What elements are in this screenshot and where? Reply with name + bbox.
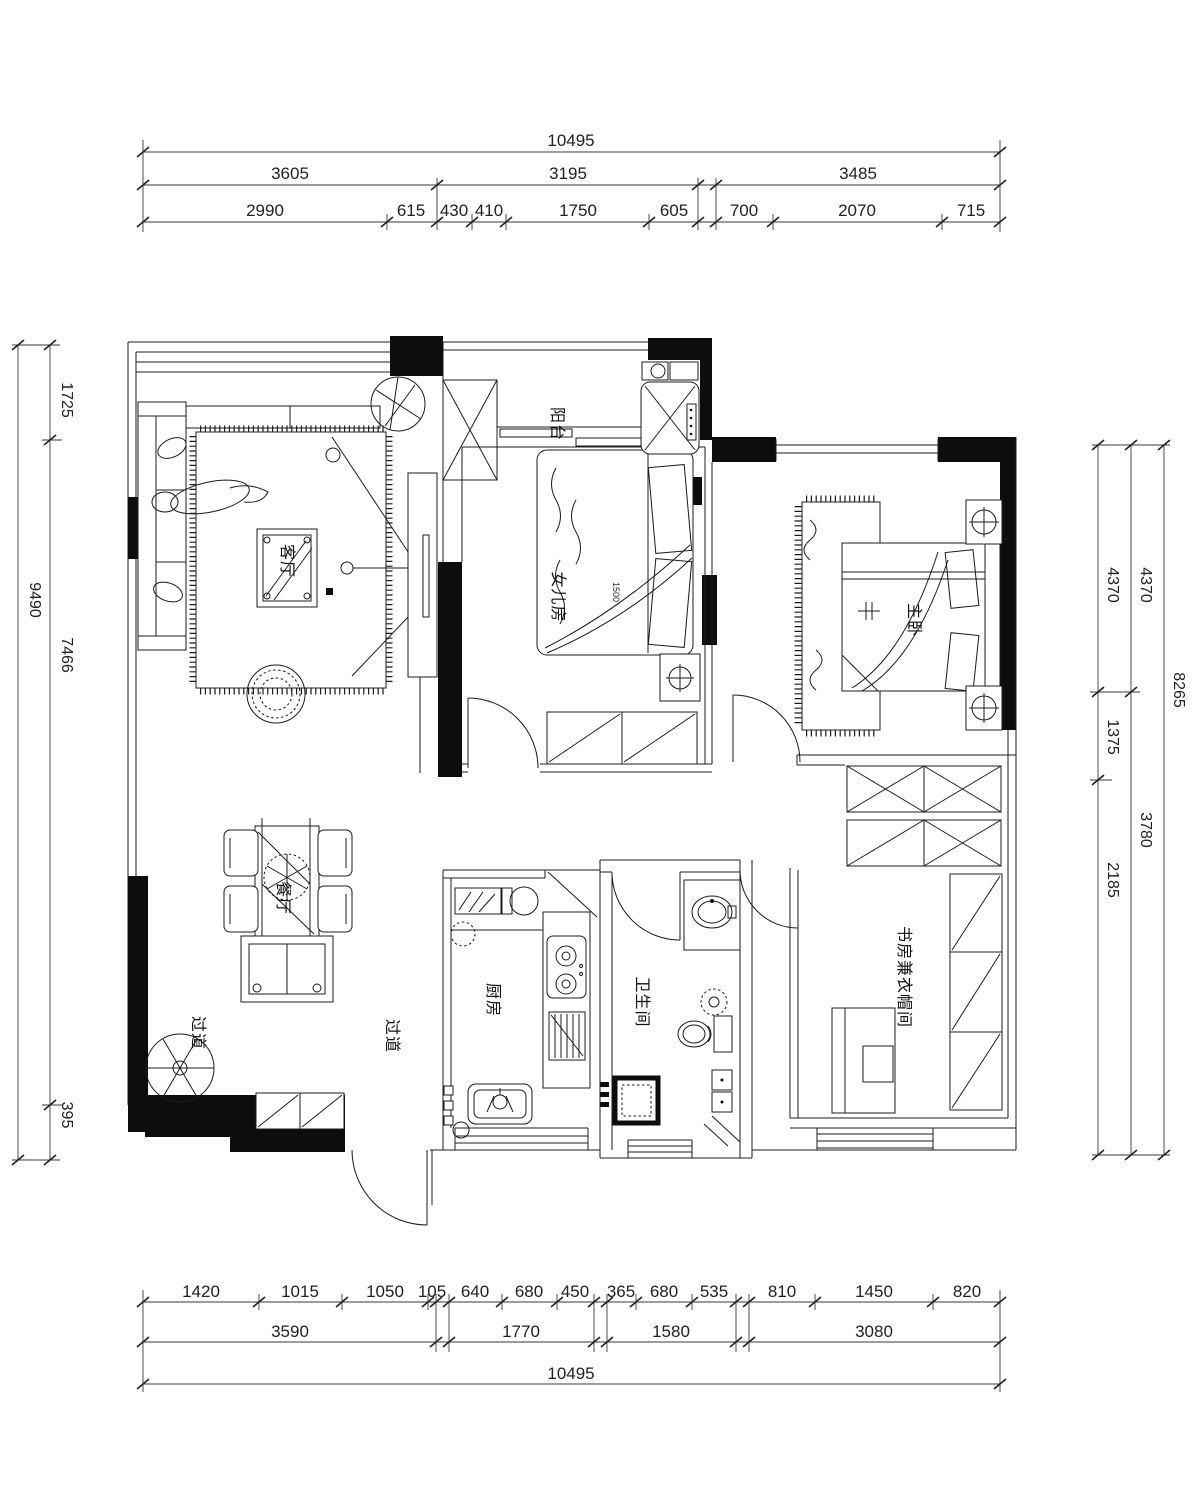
dim-right-detail: 4370 <box>1104 567 1121 603</box>
chair <box>318 830 352 876</box>
exhaust-fan <box>701 989 727 1015</box>
dim-bottom-detail: 640 <box>461 1282 489 1301</box>
dims-left: 9490 1725 7466 395 <box>12 340 75 1165</box>
furniture-kitchen <box>444 887 590 1138</box>
switch-marker <box>326 588 333 595</box>
dim-bottom-group: 1580 <box>652 1322 690 1341</box>
toilet <box>678 1016 732 1052</box>
dim-bottom-detail: 365 <box>607 1282 635 1301</box>
cabinet-column <box>950 874 1002 1110</box>
dim-top-detail: 1750 <box>559 201 597 220</box>
furniture-balcony <box>641 362 699 454</box>
nightstand <box>966 686 1002 730</box>
dim-top-detail: 2990 <box>246 201 284 220</box>
dim-right-group: 4370 <box>1137 567 1154 603</box>
washbasin <box>684 880 740 950</box>
dim-bottom-detail: 1420 <box>182 1282 220 1301</box>
door-master-bedroom <box>733 695 800 762</box>
bed-width-annotation: 1500 <box>611 582 621 602</box>
dims-top: 10495 3605 3195 3485 2990 615 430 410 17… <box>137 131 1006 232</box>
dim-top-total: 10495 <box>547 131 594 150</box>
dim-top-detail: 2070 <box>838 201 876 220</box>
wardrobe-row-2 <box>847 820 1001 866</box>
room-label-bath: 卫生间 <box>633 976 651 1027</box>
floor-plan-sheet: 10495 3605 3195 3485 2990 615 430 410 17… <box>0 0 1200 1500</box>
dim-bottom-detail: 680 <box>515 1282 543 1301</box>
nightstand <box>660 654 700 701</box>
dim-top-detail: 615 <box>397 201 425 220</box>
door-kitchen <box>548 872 597 917</box>
door-daughter-room <box>468 698 538 768</box>
nightstand <box>966 500 1002 544</box>
single-bed <box>537 450 693 655</box>
dim-bottom-detail: 820 <box>953 1282 981 1301</box>
floor-plan-canvas: 10495 3605 3195 3485 2990 615 430 410 17… <box>0 0 1200 1500</box>
dim-bottom-detail: 810 <box>768 1282 796 1301</box>
dim-bottom-group: 3590 <box>271 1322 309 1341</box>
desk-chair <box>863 1046 893 1082</box>
door-study <box>740 870 798 928</box>
furniture-master-bedroom <box>798 499 1002 733</box>
dim-bottom-detail: 450 <box>561 1282 589 1301</box>
dim-right-total: 8265 <box>1170 672 1187 708</box>
dim-right-detail: 1375 <box>1104 719 1121 755</box>
dim-top-detail: 605 <box>660 201 688 220</box>
chair <box>224 830 258 876</box>
chair <box>224 886 258 932</box>
wardrobe <box>547 712 697 764</box>
dim-top-group: 3605 <box>271 164 309 183</box>
dim-bottom-group: 3080 <box>855 1322 893 1341</box>
bath-cabinet <box>712 1070 732 1112</box>
room-label-study: 书房兼衣帽间 <box>895 926 913 1028</box>
chair <box>318 886 352 932</box>
dim-right-group: 3780 <box>1137 812 1154 848</box>
microwave <box>455 888 501 914</box>
room-label-master: 主卧 <box>905 603 923 637</box>
floor-lamp <box>326 448 340 462</box>
tv <box>423 535 429 617</box>
room-label-kitchen: 厨房 <box>484 983 502 1017</box>
dim-bottom-detail: 535 <box>700 1282 728 1301</box>
dim-bottom-detail: 680 <box>650 1282 678 1301</box>
gas-stove <box>547 936 586 998</box>
dims-right: 4370 1375 2185 4370 3780 8265 <box>1090 440 1187 1160</box>
corner-shelf <box>712 1116 740 1142</box>
dim-left-detail: 7466 <box>58 637 75 673</box>
dim-bottom-detail: 1015 <box>281 1282 319 1301</box>
sofa <box>138 402 189 650</box>
dim-bottom-group: 1770 <box>502 1322 540 1341</box>
room-label-living: 客厅 <box>278 544 296 578</box>
room-label-hall-a: 过道 <box>189 1016 207 1050</box>
dim-bottom-detail: 1450 <box>855 1282 893 1301</box>
room-label-dining: 餐厅 <box>274 881 292 915</box>
dim-bottom-detail: 1050 <box>366 1282 404 1301</box>
dim-left-detail: 1725 <box>58 382 75 418</box>
dim-left-total: 9490 <box>26 582 43 618</box>
rice-cooker <box>510 887 538 915</box>
dim-top-group: 3195 <box>549 164 587 183</box>
dim-top-detail: 715 <box>957 201 985 220</box>
room-label-daughter: 女儿房 <box>549 571 568 622</box>
room-label-balcony: 阳台 <box>548 407 566 441</box>
potted-plant <box>371 377 425 431</box>
dim-top-detail: 430 <box>440 201 468 220</box>
shower-mat <box>615 1078 658 1123</box>
sideboard <box>241 936 333 1002</box>
dim-bottom-total: 10495 <box>547 1364 594 1383</box>
burner-plate <box>451 922 475 946</box>
furniture-dining <box>146 818 352 1102</box>
desk <box>832 1008 895 1113</box>
dim-left-detail: 395 <box>58 1102 75 1129</box>
furniture-bathroom <box>600 880 740 1146</box>
dims-bottom: 1420 1015 1050 105 640 680 450 365 680 5… <box>137 1282 1006 1392</box>
washing-machine <box>641 382 699 454</box>
dim-top-detail: 410 <box>475 201 503 220</box>
dim-top-group: 3485 <box>839 164 877 183</box>
dim-top-detail: 700 <box>730 201 758 220</box>
drain-rack <box>549 1012 585 1060</box>
room-label-hall-b: 过道 <box>383 1019 401 1053</box>
kitchen-sink <box>468 1084 532 1124</box>
wardrobe-row-1 <box>847 766 1001 812</box>
door-bathroom <box>612 872 680 940</box>
furniture-study <box>832 766 1002 1113</box>
dim-right-detail: 2185 <box>1104 862 1121 898</box>
door-entry <box>352 1150 427 1225</box>
dim-bottom-detail: 105 <box>418 1282 446 1301</box>
